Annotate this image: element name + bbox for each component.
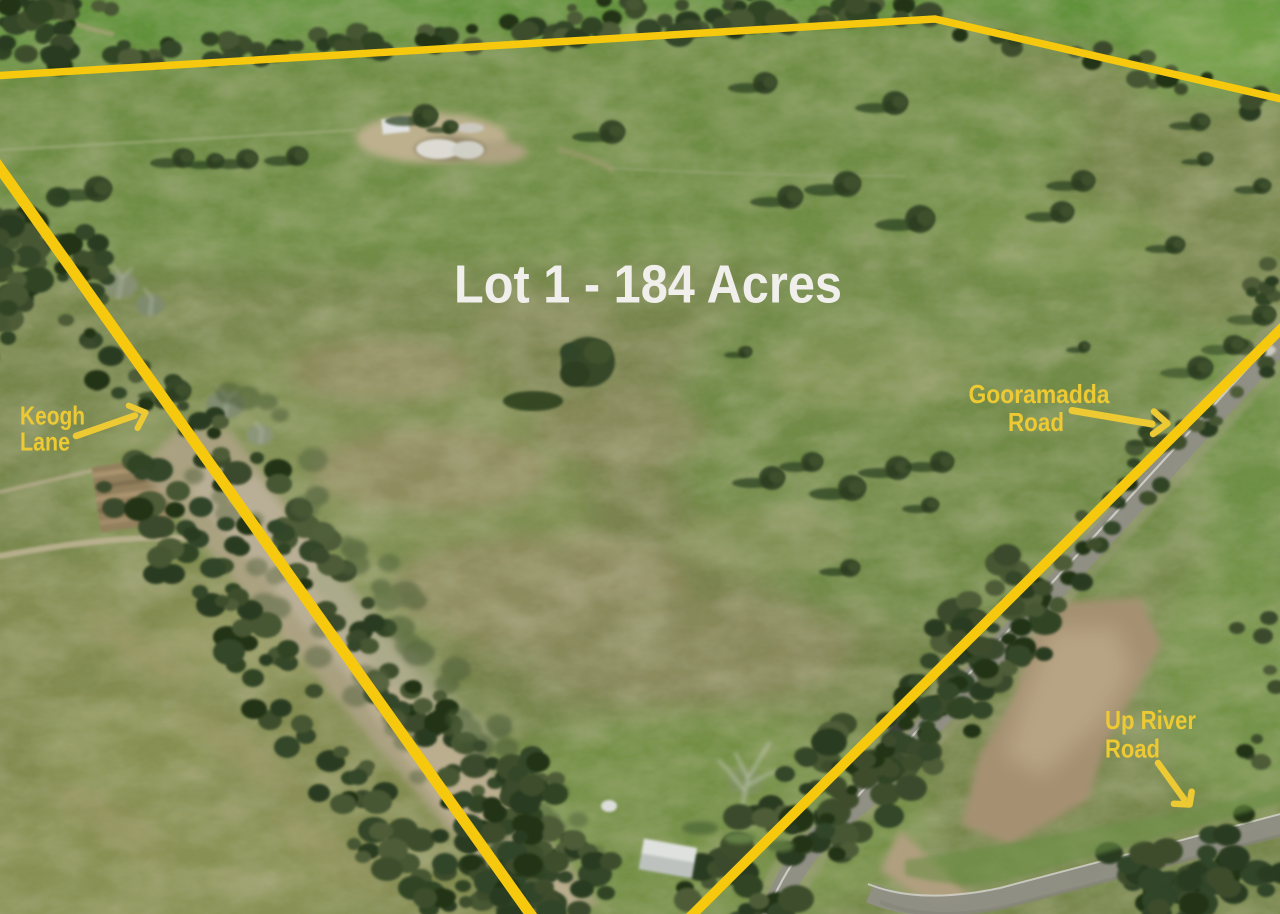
svg-text:Lot 1 - 184 Acres: Lot 1 - 184 Acres: [454, 255, 842, 314]
svg-text:Road: Road: [1008, 407, 1064, 437]
svg-text:Road: Road: [1105, 734, 1160, 764]
svg-text:Lane: Lane: [20, 427, 70, 457]
svg-text:Gooramadda: Gooramadda: [969, 379, 1110, 409]
svg-text:Up River: Up River: [1105, 705, 1196, 735]
